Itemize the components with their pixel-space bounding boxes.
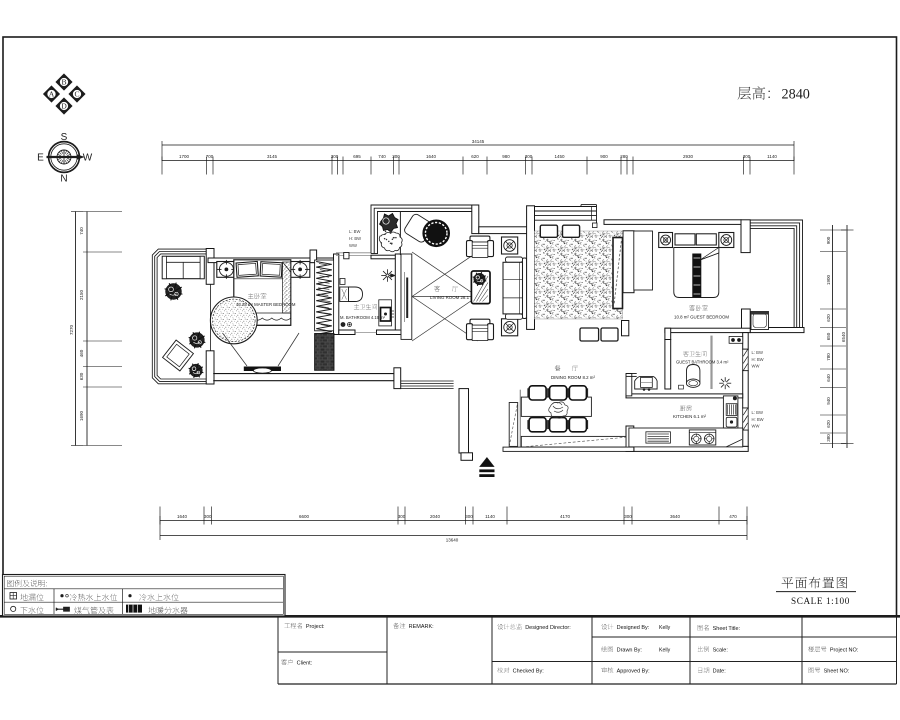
svg-text:300: 300 [331, 154, 339, 159]
svg-text:2840: 2840 [782, 87, 810, 103]
svg-text:1690: 1690 [79, 410, 84, 421]
svg-text:S: S [61, 132, 68, 143]
svg-text:13640: 13640 [446, 538, 459, 543]
svg-text:Sheet NO:: Sheet NO: [824, 669, 850, 675]
svg-text:H: BW: H: BW [752, 417, 764, 422]
svg-text:700: 700 [206, 154, 214, 159]
svg-text:LIVING ROOM 28.1 m²: LIVING ROOM 28.1 m² [430, 295, 476, 300]
svg-text:630: 630 [79, 372, 84, 380]
svg-text:640: 640 [826, 374, 831, 382]
svg-text:780: 780 [826, 353, 831, 361]
svg-text:E: E [37, 153, 44, 164]
svg-text:L: BW: L: BW [752, 350, 763, 355]
svg-text:WW: WW [752, 424, 760, 429]
svg-text:940: 940 [826, 397, 831, 405]
svg-text:Project NO:: Project NO: [830, 648, 859, 654]
svg-text:300: 300 [624, 514, 632, 519]
svg-text:7270: 7270 [69, 324, 74, 335]
svg-text:Sheet Title:: Sheet Title: [713, 626, 741, 632]
svg-text:N: N [60, 174, 67, 185]
svg-text:1900: 1900 [826, 274, 831, 285]
svg-text:620: 620 [826, 420, 831, 428]
svg-text:Drawn By:: Drawn By: [617, 648, 643, 654]
svg-text:6540: 6540 [841, 331, 846, 342]
svg-text:C: C [74, 90, 79, 99]
svg-text:Designed Director:: Designed Director: [525, 625, 571, 631]
svg-text:W: W [83, 153, 93, 164]
svg-text:SCALE 1:100: SCALE 1:100 [791, 596, 850, 606]
svg-text:900: 900 [826, 236, 831, 244]
svg-text:KITCHEN 6.1 m²: KITCHEN 6.1 m² [673, 414, 706, 419]
svg-text:300: 300 [465, 514, 473, 519]
svg-text:740: 740 [378, 154, 386, 159]
svg-text:Project:: Project: [306, 624, 325, 630]
svg-text:Designed By:: Designed By: [617, 625, 650, 631]
svg-text:WW: WW [752, 364, 760, 369]
svg-text:Checked By:: Checked By: [513, 669, 545, 675]
svg-text:300: 300 [743, 154, 751, 159]
svg-text:M. BATHROOM 4.19 m²: M. BATHROOM 4.19 m² [340, 315, 386, 320]
svg-text:300: 300 [204, 514, 212, 519]
svg-text:2040: 2040 [430, 514, 441, 519]
svg-text:GUEST BATHROOM 3.4 m²: GUEST BATHROOM 3.4 m² [676, 360, 729, 365]
svg-text:Kelly: Kelly [659, 625, 671, 631]
svg-text:2150: 2150 [79, 289, 84, 300]
svg-text:980: 980 [502, 154, 510, 159]
svg-text:REMARK:: REMARK: [409, 624, 435, 630]
svg-text:740: 740 [79, 227, 84, 235]
svg-text:34145: 34145 [472, 139, 485, 144]
svg-text:DINING ROOM 8.2 m²: DINING ROOM 8.2 m² [551, 375, 595, 380]
svg-text:650: 650 [826, 332, 831, 340]
svg-text:1140: 1140 [767, 154, 777, 159]
svg-text:2930: 2930 [683, 154, 694, 159]
svg-text:620: 620 [826, 314, 831, 322]
svg-text:Approved By:: Approved By: [617, 669, 650, 675]
svg-text:Client:: Client: [297, 661, 313, 667]
svg-text:Date:: Date: [713, 669, 727, 675]
svg-text:1700: 1700 [179, 154, 190, 159]
svg-text:620: 620 [471, 154, 479, 159]
svg-text:16.28 m² MASTER BEDROOM: 16.28 m² MASTER BEDROOM [236, 302, 296, 307]
svg-text:10.8 m² GUEST BEDROOM: 10.8 m² GUEST BEDROOM [674, 315, 729, 320]
svg-text:3640: 3640 [670, 514, 681, 519]
svg-text:4170: 4170 [560, 514, 571, 519]
svg-text:300: 300 [525, 154, 533, 159]
svg-text:H: BW: H: BW [752, 357, 764, 362]
svg-text:1140: 1140 [485, 514, 495, 519]
svg-text:280: 280 [620, 154, 628, 159]
svg-text:Kelly: Kelly [659, 648, 671, 654]
svg-text:695: 695 [353, 154, 361, 159]
svg-text:Scale:: Scale: [713, 648, 729, 654]
svg-text:300: 300 [392, 154, 400, 159]
svg-text:460: 460 [79, 349, 84, 357]
svg-text:1640: 1640 [177, 514, 188, 519]
svg-text:WW: WW [349, 243, 357, 248]
svg-text:B: B [61, 78, 66, 87]
svg-text:L: BW: L: BW [752, 410, 763, 415]
svg-text:6600: 6600 [299, 514, 310, 519]
svg-text:H: BW: H: BW [349, 236, 361, 241]
svg-text:900: 900 [600, 154, 608, 159]
svg-text:300: 300 [398, 514, 406, 519]
svg-text:470: 470 [729, 514, 737, 519]
svg-text:1640: 1640 [426, 154, 437, 159]
svg-text:1450: 1450 [554, 154, 565, 159]
svg-text:3145: 3145 [267, 154, 278, 159]
svg-text:A: A [49, 90, 55, 99]
svg-text:L: BW: L: BW [349, 229, 360, 234]
svg-text:380: 380 [826, 434, 831, 442]
svg-text:D: D [61, 102, 67, 111]
